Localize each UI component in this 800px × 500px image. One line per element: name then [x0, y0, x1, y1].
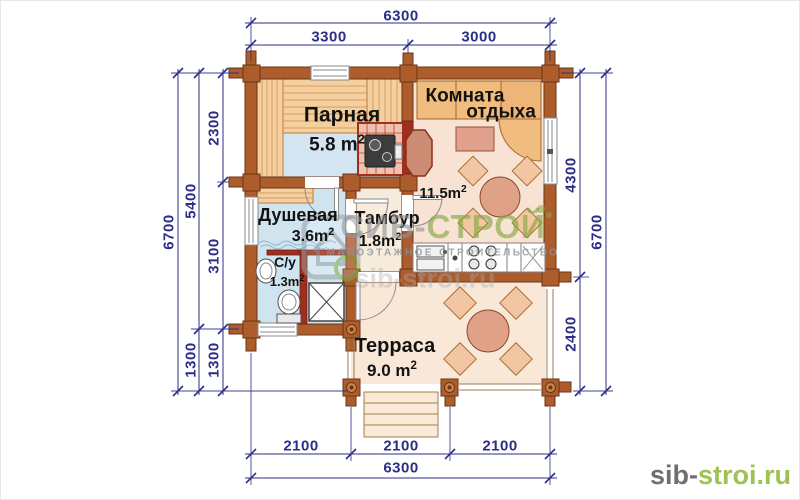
room-label-terrasa: Терраса: [355, 336, 435, 356]
dim-bottom-middle: 2100: [383, 439, 418, 454]
room-area-terrasa: 9.0 m2: [367, 361, 417, 379]
dim-top-overall: 6300: [383, 9, 418, 24]
floor-plan-image: Парная 5.8 m2 Комната отдыха 11.5m2 Душе…: [0, 0, 800, 500]
dim-right-outer: 6700: [590, 214, 605, 249]
room-label-parnaya: Парная: [304, 105, 380, 126]
room-area-parnaya: 5.8 m2: [309, 133, 365, 154]
dim-right-inner-upper: 4300: [564, 157, 579, 192]
room-area-dushevaya: 3.6m2: [292, 227, 335, 245]
dim-bottom-right: 2100: [482, 439, 517, 454]
dim-left-mid-upper: 5400: [184, 183, 199, 218]
room-area-su: 1.3m2: [270, 274, 305, 288]
room-area-komnata: 11.5m2: [419, 185, 466, 201]
dim-left-mid-lower: 1300: [184, 342, 199, 377]
dim-left-outer: 6700: [162, 214, 177, 249]
site-logo-prefix: sib-: [650, 460, 698, 490]
window-wc-bottom: [258, 323, 297, 336]
dim-top-left: 3300: [311, 30, 346, 45]
site-logo: sib-stroi.ru: [650, 460, 791, 491]
dim-left-inner-lower: 1300: [207, 342, 222, 377]
stove-chimney-octagon: [406, 130, 432, 176]
watermark-url: sib-stroi.ru: [354, 264, 495, 295]
window-sauna-top: [311, 66, 349, 80]
dim-top-right: 3000: [461, 30, 496, 45]
dim-left-inner-upper: 2300: [207, 110, 222, 145]
dim-right-inner-lower: 2400: [564, 316, 579, 351]
room-label-su: С/у: [274, 255, 296, 269]
watermark-brand-green: СТРОЙ: [427, 208, 546, 245]
watermark-brand: СИБ-СТРОЙ: [340, 208, 545, 246]
dim-bottom-overall: 6300: [383, 461, 418, 476]
toilet: [277, 290, 301, 323]
room-label-dushevaya: Душевая: [258, 206, 337, 224]
sauna-stove: [358, 123, 432, 176]
site-logo-suffix: stroi.ru: [698, 460, 791, 490]
window-shower-left: [245, 197, 258, 245]
room-label-komnata-line2: отдыха: [466, 103, 536, 122]
window-lounge-right: [544, 118, 557, 184]
lounge-side-table: [456, 127, 494, 151]
dim-bottom-left: 2100: [283, 439, 318, 454]
dim-left-inner-middle: 3100: [207, 238, 222, 273]
watermark-tagline: МАЛОЭТАЖНОЕ СТРОИТЕЛЬСТВО: [327, 248, 560, 259]
watermark-brand-gray: СИБ-: [340, 208, 426, 245]
terrace-steps: [364, 392, 438, 437]
washing-machine: [309, 283, 344, 321]
